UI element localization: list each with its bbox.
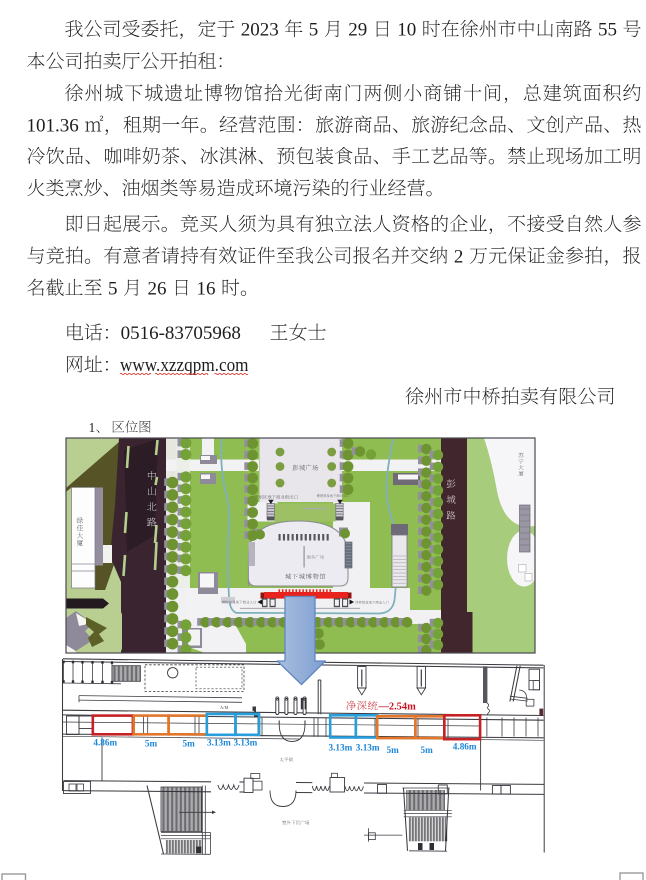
svg-text:101.36: 101.36 bbox=[27, 116, 79, 137]
svg-text:3.13m: 3.13m bbox=[234, 738, 258, 748]
svg-text:—2.54m: —2.54m bbox=[378, 701, 417, 712]
svg-text:29: 29 bbox=[348, 20, 367, 41]
svg-text:3.13m: 3.13m bbox=[356, 743, 380, 753]
svg-text:5m: 5m bbox=[421, 745, 434, 755]
svg-text:3.13m: 3.13m bbox=[207, 738, 231, 748]
svg-text:10: 10 bbox=[397, 20, 416, 41]
svg-text:3.13m: 3.13m bbox=[329, 743, 353, 753]
svg-text:55: 55 bbox=[598, 20, 617, 41]
svg-text:www.xzzqpm.com: www.xzzqpm.com bbox=[120, 355, 249, 376]
svg-text:0516-83705968: 0516-83705968 bbox=[121, 323, 241, 344]
svg-text:4.86m: 4.86m bbox=[93, 738, 117, 748]
svg-text:5: 5 bbox=[108, 278, 118, 299]
svg-text:5m: 5m bbox=[145, 738, 158, 748]
svg-text:5m: 5m bbox=[183, 738, 196, 748]
svg-text:A/M: A/M bbox=[220, 705, 229, 710]
svg-text:4.86m: 4.86m bbox=[453, 742, 477, 752]
svg-text:2: 2 bbox=[454, 246, 464, 267]
svg-text:5m: 5m bbox=[387, 745, 400, 755]
svg-text:2023: 2023 bbox=[241, 20, 279, 41]
svg-text:5: 5 bbox=[309, 20, 319, 41]
svg-text:26: 26 bbox=[148, 278, 167, 299]
svg-text:16: 16 bbox=[197, 278, 216, 299]
svg-text:1: 1 bbox=[89, 420, 96, 435]
